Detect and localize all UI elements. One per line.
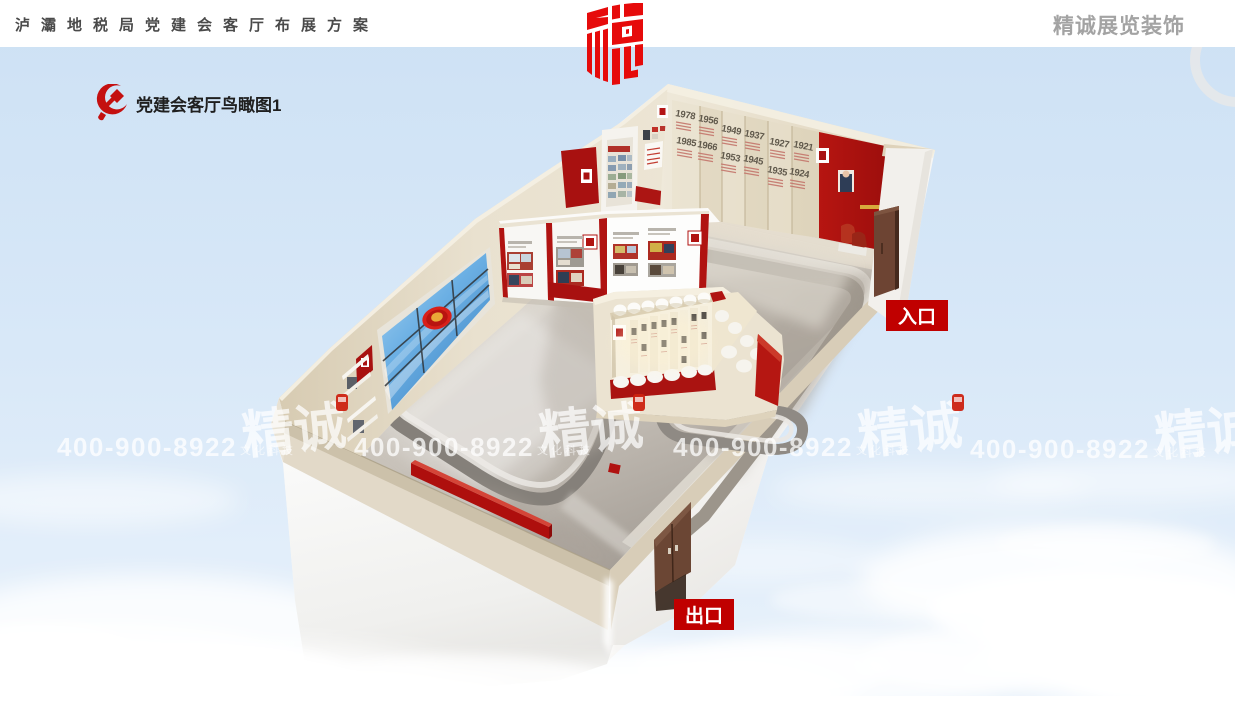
svg-text:精诚: 精诚 — [239, 397, 349, 466]
svg-text:400-900-8922: 400-900-8922 — [57, 432, 237, 462]
svg-text:入口: 入口 — [898, 306, 936, 328]
svg-text:出口: 出口 — [685, 604, 723, 627]
